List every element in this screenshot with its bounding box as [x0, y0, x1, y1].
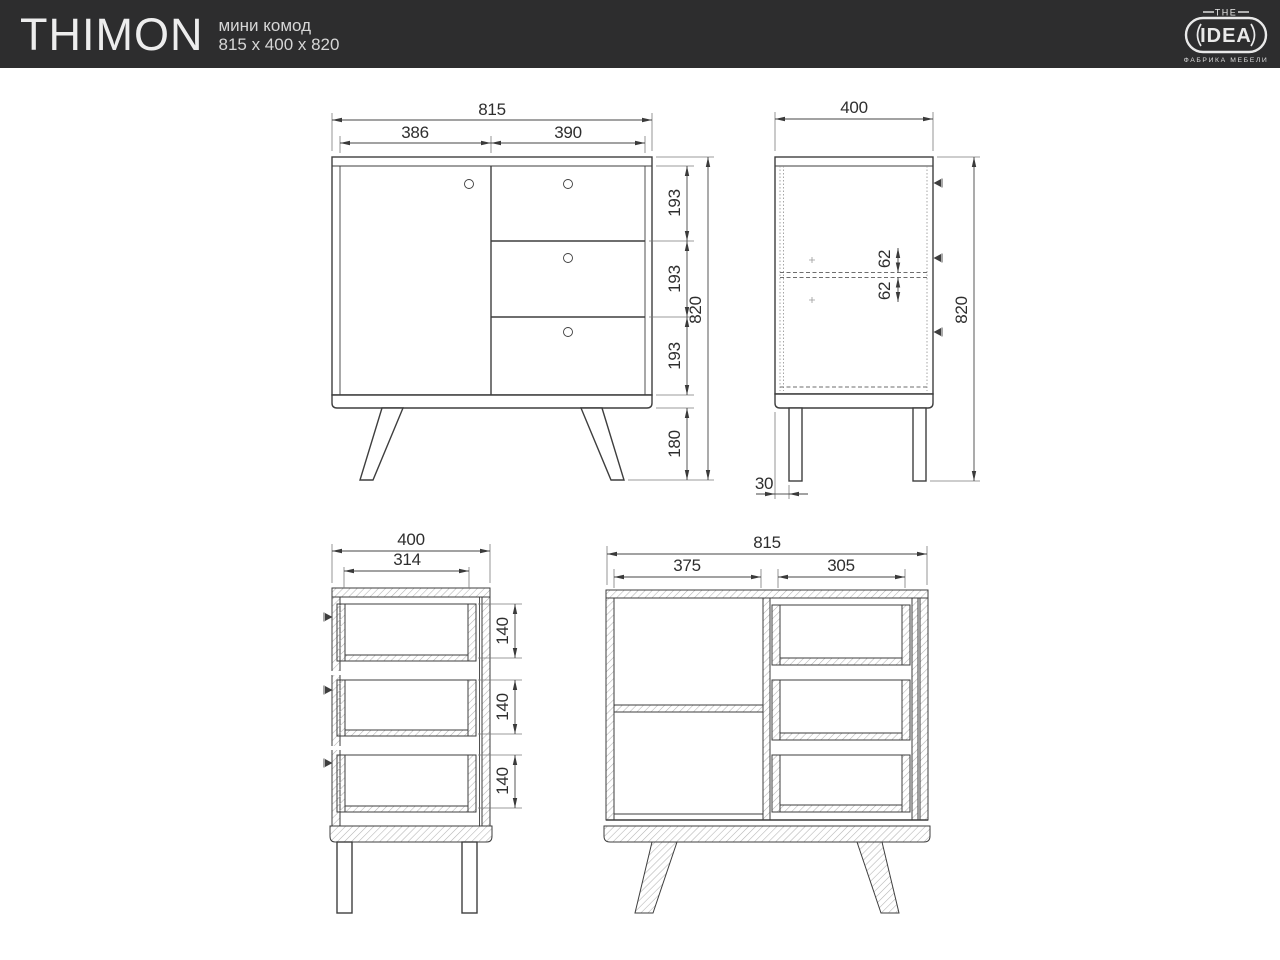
plinth	[332, 395, 652, 408]
dim-section-total-depth: 400	[397, 530, 424, 549]
dim-drawer-front-width: 390	[554, 123, 581, 142]
dim-shelf-offset-lower: 62	[875, 282, 894, 300]
front-leg	[789, 408, 802, 481]
side-section-outline	[324, 588, 492, 913]
back-leg	[913, 408, 926, 481]
product-subtitle: мини комод 815 x 400 x 820	[218, 16, 339, 54]
dim-drawer-height-2: 193	[665, 265, 684, 292]
section-knob-1	[324, 613, 333, 622]
drawer-box-3-section	[337, 755, 476, 812]
dim-section-total-width: 815	[753, 533, 780, 552]
dim-leg-front-offset: 30	[755, 474, 773, 493]
drawer-box-1-section	[337, 604, 476, 661]
right-wall-section	[920, 598, 928, 820]
plinth-section	[604, 826, 930, 842]
dim-drawer-box-height-1: 140	[493, 617, 512, 644]
dim-side-total-height: 820	[952, 296, 971, 323]
front-section-outline	[604, 590, 930, 913]
drawer-side-panel-section	[912, 598, 918, 820]
back-leg	[462, 842, 477, 913]
brand-logo: THE IDEA ФАБРИКА МЕБЕЛИ	[1180, 3, 1272, 65]
shelf-section	[614, 705, 763, 712]
section-knob-2	[324, 686, 333, 695]
dim-drawer-depth: 314	[393, 550, 420, 569]
header-bar: THIMON мини комод 815 x 400 x 820 THE ID…	[0, 0, 1280, 68]
cabinet-side-body	[775, 157, 933, 394]
drawer-box-1-section	[772, 605, 910, 665]
dim-drawer-box-width: 305	[827, 556, 854, 575]
cabinet-body	[332, 157, 652, 395]
cabinet-front-outline	[332, 157, 652, 480]
side-knob-3	[934, 328, 943, 337]
side-knob-2	[934, 254, 943, 263]
front-elevation-view: 815 386 390 193 193 193 180 820	[300, 95, 730, 495]
drawing-sheet: THIMON мини комод 815 x 400 x 820 THE ID…	[0, 0, 1280, 960]
dim-drawer-height-1: 193	[665, 189, 684, 216]
plinth	[775, 394, 933, 408]
side-elevation-view: 400 820 62 62 30	[730, 95, 1000, 507]
front-section-view: 815 375 305	[585, 530, 975, 945]
dim-front-total-width: 815	[478, 100, 505, 119]
left-leg-section	[635, 842, 677, 913]
cabinet-side-outline	[775, 157, 942, 481]
side-section-dimensions: 400 314 140 140 140	[332, 530, 522, 808]
right-leg	[581, 408, 624, 480]
back-panel-section	[482, 597, 490, 826]
product-title: THIMON	[20, 12, 203, 57]
top-panel-section	[606, 590, 928, 598]
middle-divider-section	[763, 598, 770, 820]
top-panel-section	[332, 588, 490, 597]
front-leg	[337, 842, 352, 913]
dim-drawer-height-3: 193	[665, 342, 684, 369]
dim-drawer-box-height-2: 140	[493, 693, 512, 720]
front-section-dimensions: 815 375 305	[607, 533, 927, 588]
plinth-section	[330, 826, 492, 842]
section-knob-3	[324, 759, 333, 768]
side-section-view: 400 314 140 140 140	[295, 530, 545, 945]
dim-compartment-inner-width: 375	[673, 556, 700, 575]
right-leg-section	[857, 842, 899, 913]
drawer-box-2-section	[772, 680, 910, 740]
product-type: мини комод	[218, 16, 339, 35]
left-leg	[360, 408, 403, 480]
dim-drawer-box-height-3: 140	[493, 767, 512, 794]
side-knob-1	[934, 179, 943, 188]
dim-leg-height: 180	[665, 430, 684, 457]
logo-the-text: THE	[1215, 8, 1238, 18]
logo-tagline: ФАБРИКА МЕБЕЛИ	[1184, 57, 1269, 64]
drawer-box-2-section	[337, 680, 476, 736]
dim-side-total-depth: 400	[840, 98, 867, 117]
left-wall-section	[606, 598, 614, 820]
logo-idea-text: IDEA	[1200, 25, 1252, 47]
dim-door-width: 386	[401, 123, 428, 142]
drawer-front-gap-2	[331, 746, 342, 750]
dim-front-total-height: 820	[686, 296, 705, 323]
drawer-front-gap-1	[331, 671, 342, 675]
drawer-box-3-section	[772, 755, 910, 812]
product-dimensions: 815 x 400 x 820	[218, 35, 339, 54]
dim-shelf-offset-upper: 62	[875, 250, 894, 268]
